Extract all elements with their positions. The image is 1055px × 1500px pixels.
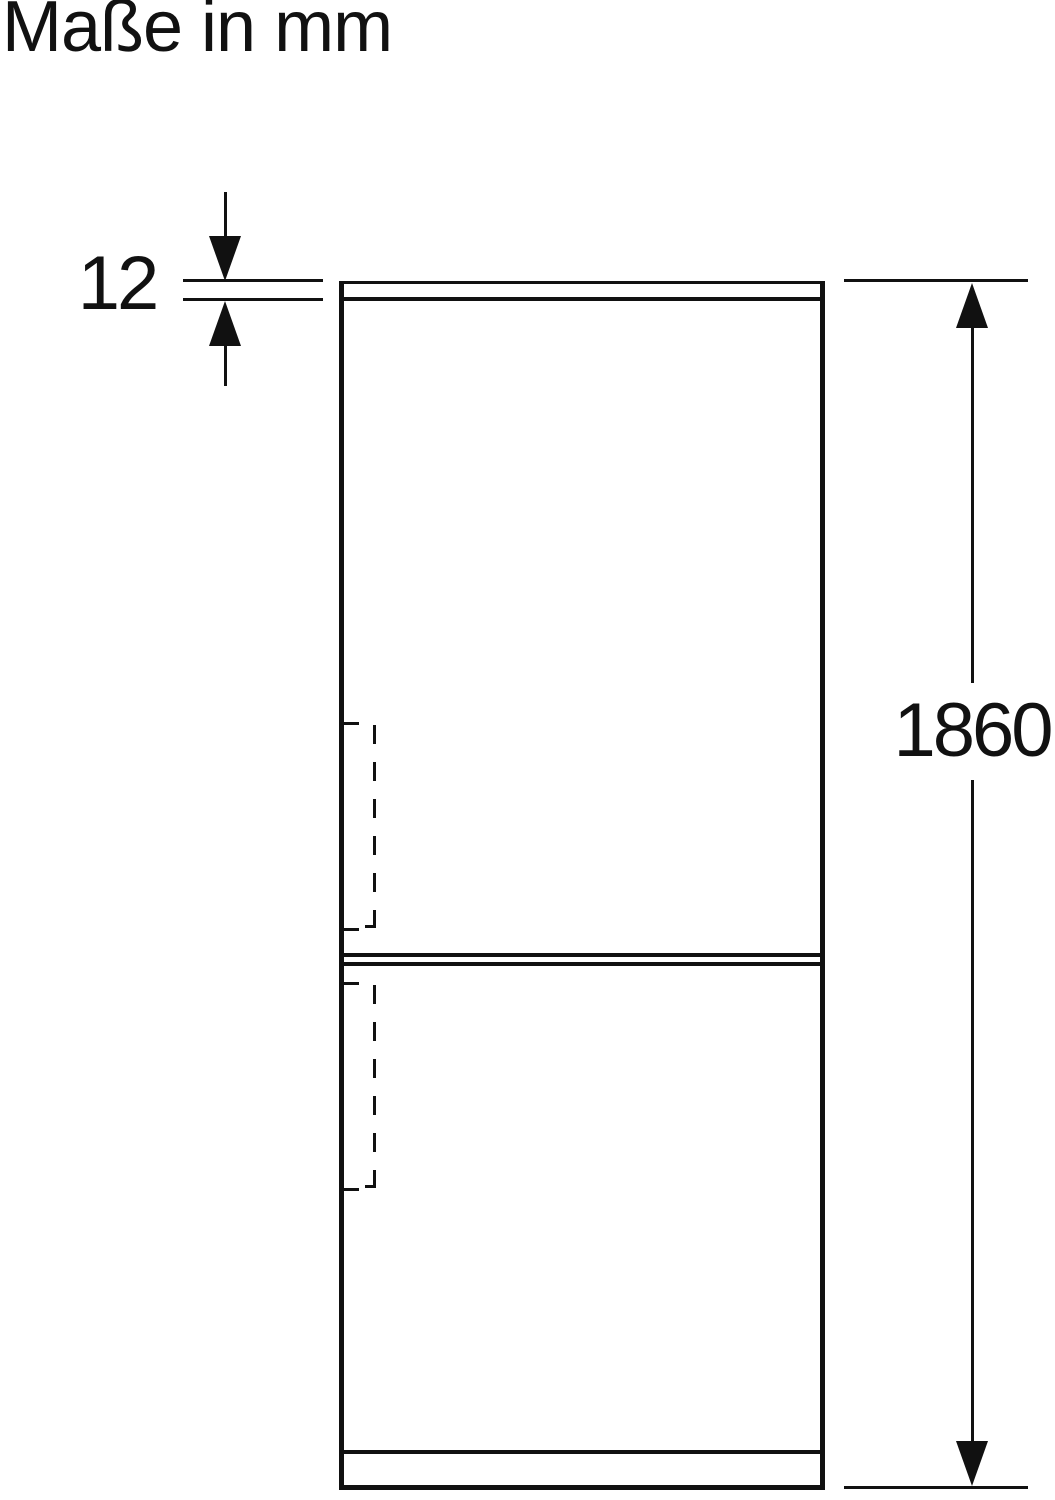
appliance-top-edge xyxy=(339,281,825,284)
height-dimension-line-lower xyxy=(971,780,974,1442)
plinth-top-line xyxy=(344,1450,820,1454)
lower-door-top-edge xyxy=(344,962,820,966)
height-arrow-up-icon xyxy=(956,283,988,328)
dim12-extension-line-top xyxy=(183,279,323,282)
top-panel-bottom-line xyxy=(344,297,820,301)
upper-hinge-foot xyxy=(365,925,376,928)
lower-hinge-dashed-line xyxy=(373,985,376,1188)
lower-hinge-tick-bottom xyxy=(344,1188,359,1191)
dim12-leader-upper xyxy=(224,192,227,238)
top-panel-thickness-label: 12 xyxy=(62,246,172,322)
height-extension-line-bottom xyxy=(844,1486,1028,1489)
height-dimension-line-upper xyxy=(971,326,974,683)
upper-hinge-dashed-line xyxy=(373,725,376,928)
dim12-extension-line-bottom xyxy=(183,298,323,301)
dimension-diagram: Maße in mm 12 1860 xyxy=(0,0,1055,1500)
height-extension-line-top xyxy=(844,279,1028,282)
diagram-title: Maße in mm xyxy=(2,0,392,63)
dim12-arrow-down-icon xyxy=(209,236,241,281)
dim12-arrow-up-icon xyxy=(209,301,241,346)
lower-hinge-foot xyxy=(365,1185,376,1188)
appliance-right-edge xyxy=(820,281,825,1490)
upper-hinge-tick-top xyxy=(344,722,359,725)
upper-hinge-tick-bottom xyxy=(344,928,359,931)
lower-hinge-tick-top xyxy=(344,982,359,985)
appliance-left-edge xyxy=(339,281,344,1490)
appliance-bottom-edge xyxy=(339,1485,825,1490)
total-height-label: 1860 xyxy=(872,693,1055,769)
upper-door-bottom-edge xyxy=(344,953,820,957)
dim12-leader-lower xyxy=(224,344,227,386)
height-arrow-down-icon xyxy=(956,1441,988,1486)
